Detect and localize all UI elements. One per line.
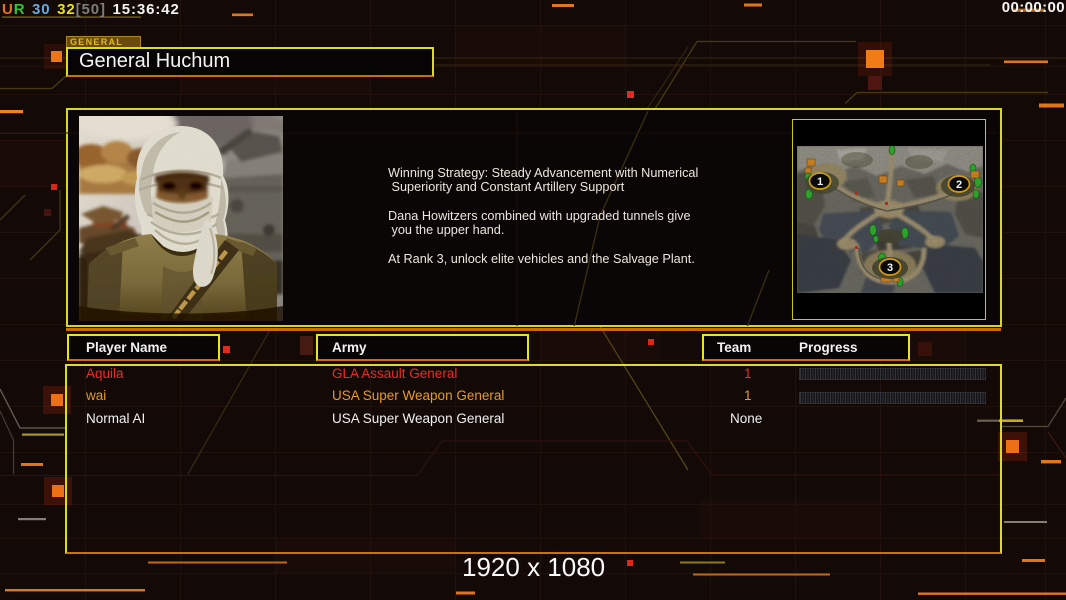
svg-text:2: 2 — [956, 179, 962, 191]
svg-text:1: 1 — [817, 176, 823, 188]
svg-text:3: 3 — [887, 262, 893, 274]
